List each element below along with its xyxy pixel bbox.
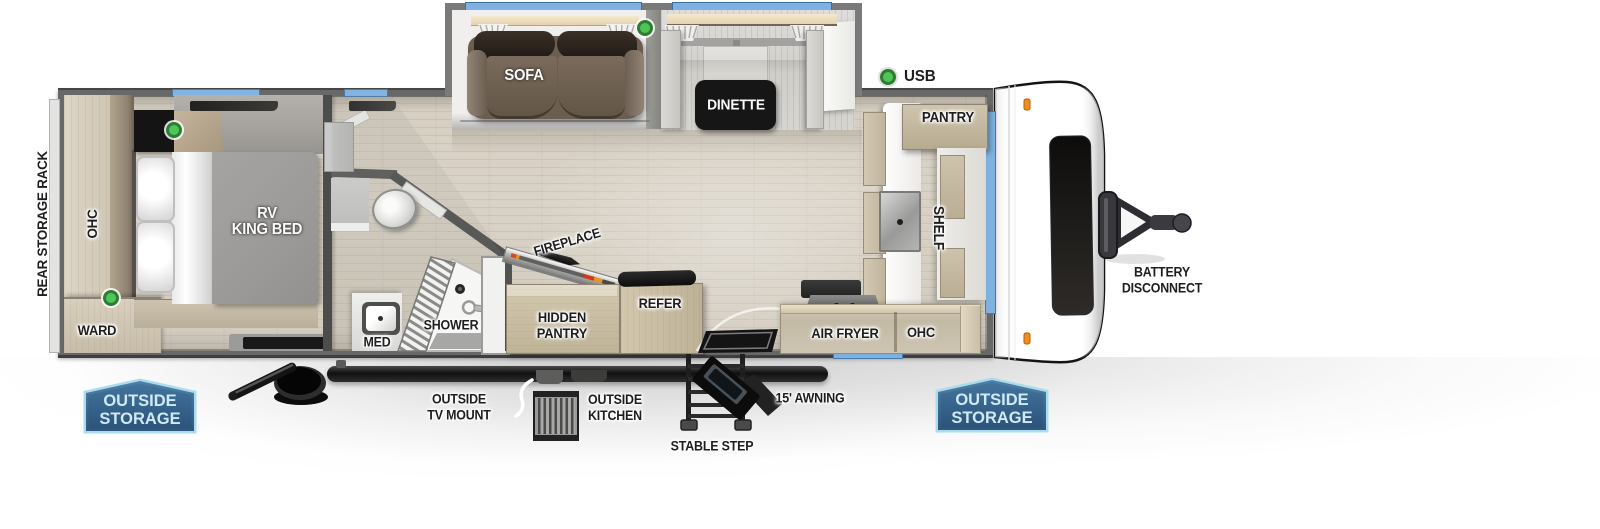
svg-text:OUTSIDE: OUTSIDE [955, 391, 1028, 409]
svg-text:STORAGE: STORAGE [951, 409, 1032, 427]
svg-text:STORAGE: STORAGE [99, 410, 180, 428]
svg-text:OUTSIDE: OUTSIDE [103, 392, 176, 410]
